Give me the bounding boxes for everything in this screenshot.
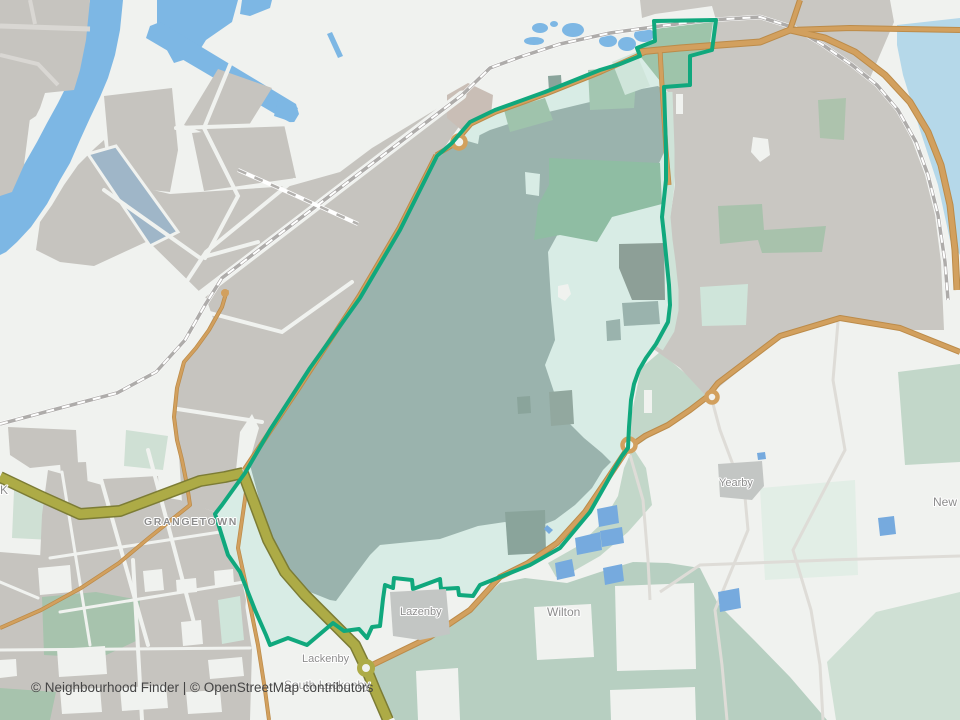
svg-text:Wilton: Wilton <box>547 605 580 619</box>
svg-text:Lazenby: Lazenby <box>400 606 442 618</box>
svg-text:New: New <box>933 495 957 509</box>
svg-text:© Neighbourhood Finder | © Ope: © Neighbourhood Finder | © OpenStreetMap… <box>31 680 374 695</box>
svg-text:Lackenby: Lackenby <box>302 653 350 665</box>
svg-text:K: K <box>0 483 8 497</box>
svg-text:Yearby: Yearby <box>719 477 753 489</box>
svg-text:GRANGETOWN: GRANGETOWN <box>144 516 238 528</box>
